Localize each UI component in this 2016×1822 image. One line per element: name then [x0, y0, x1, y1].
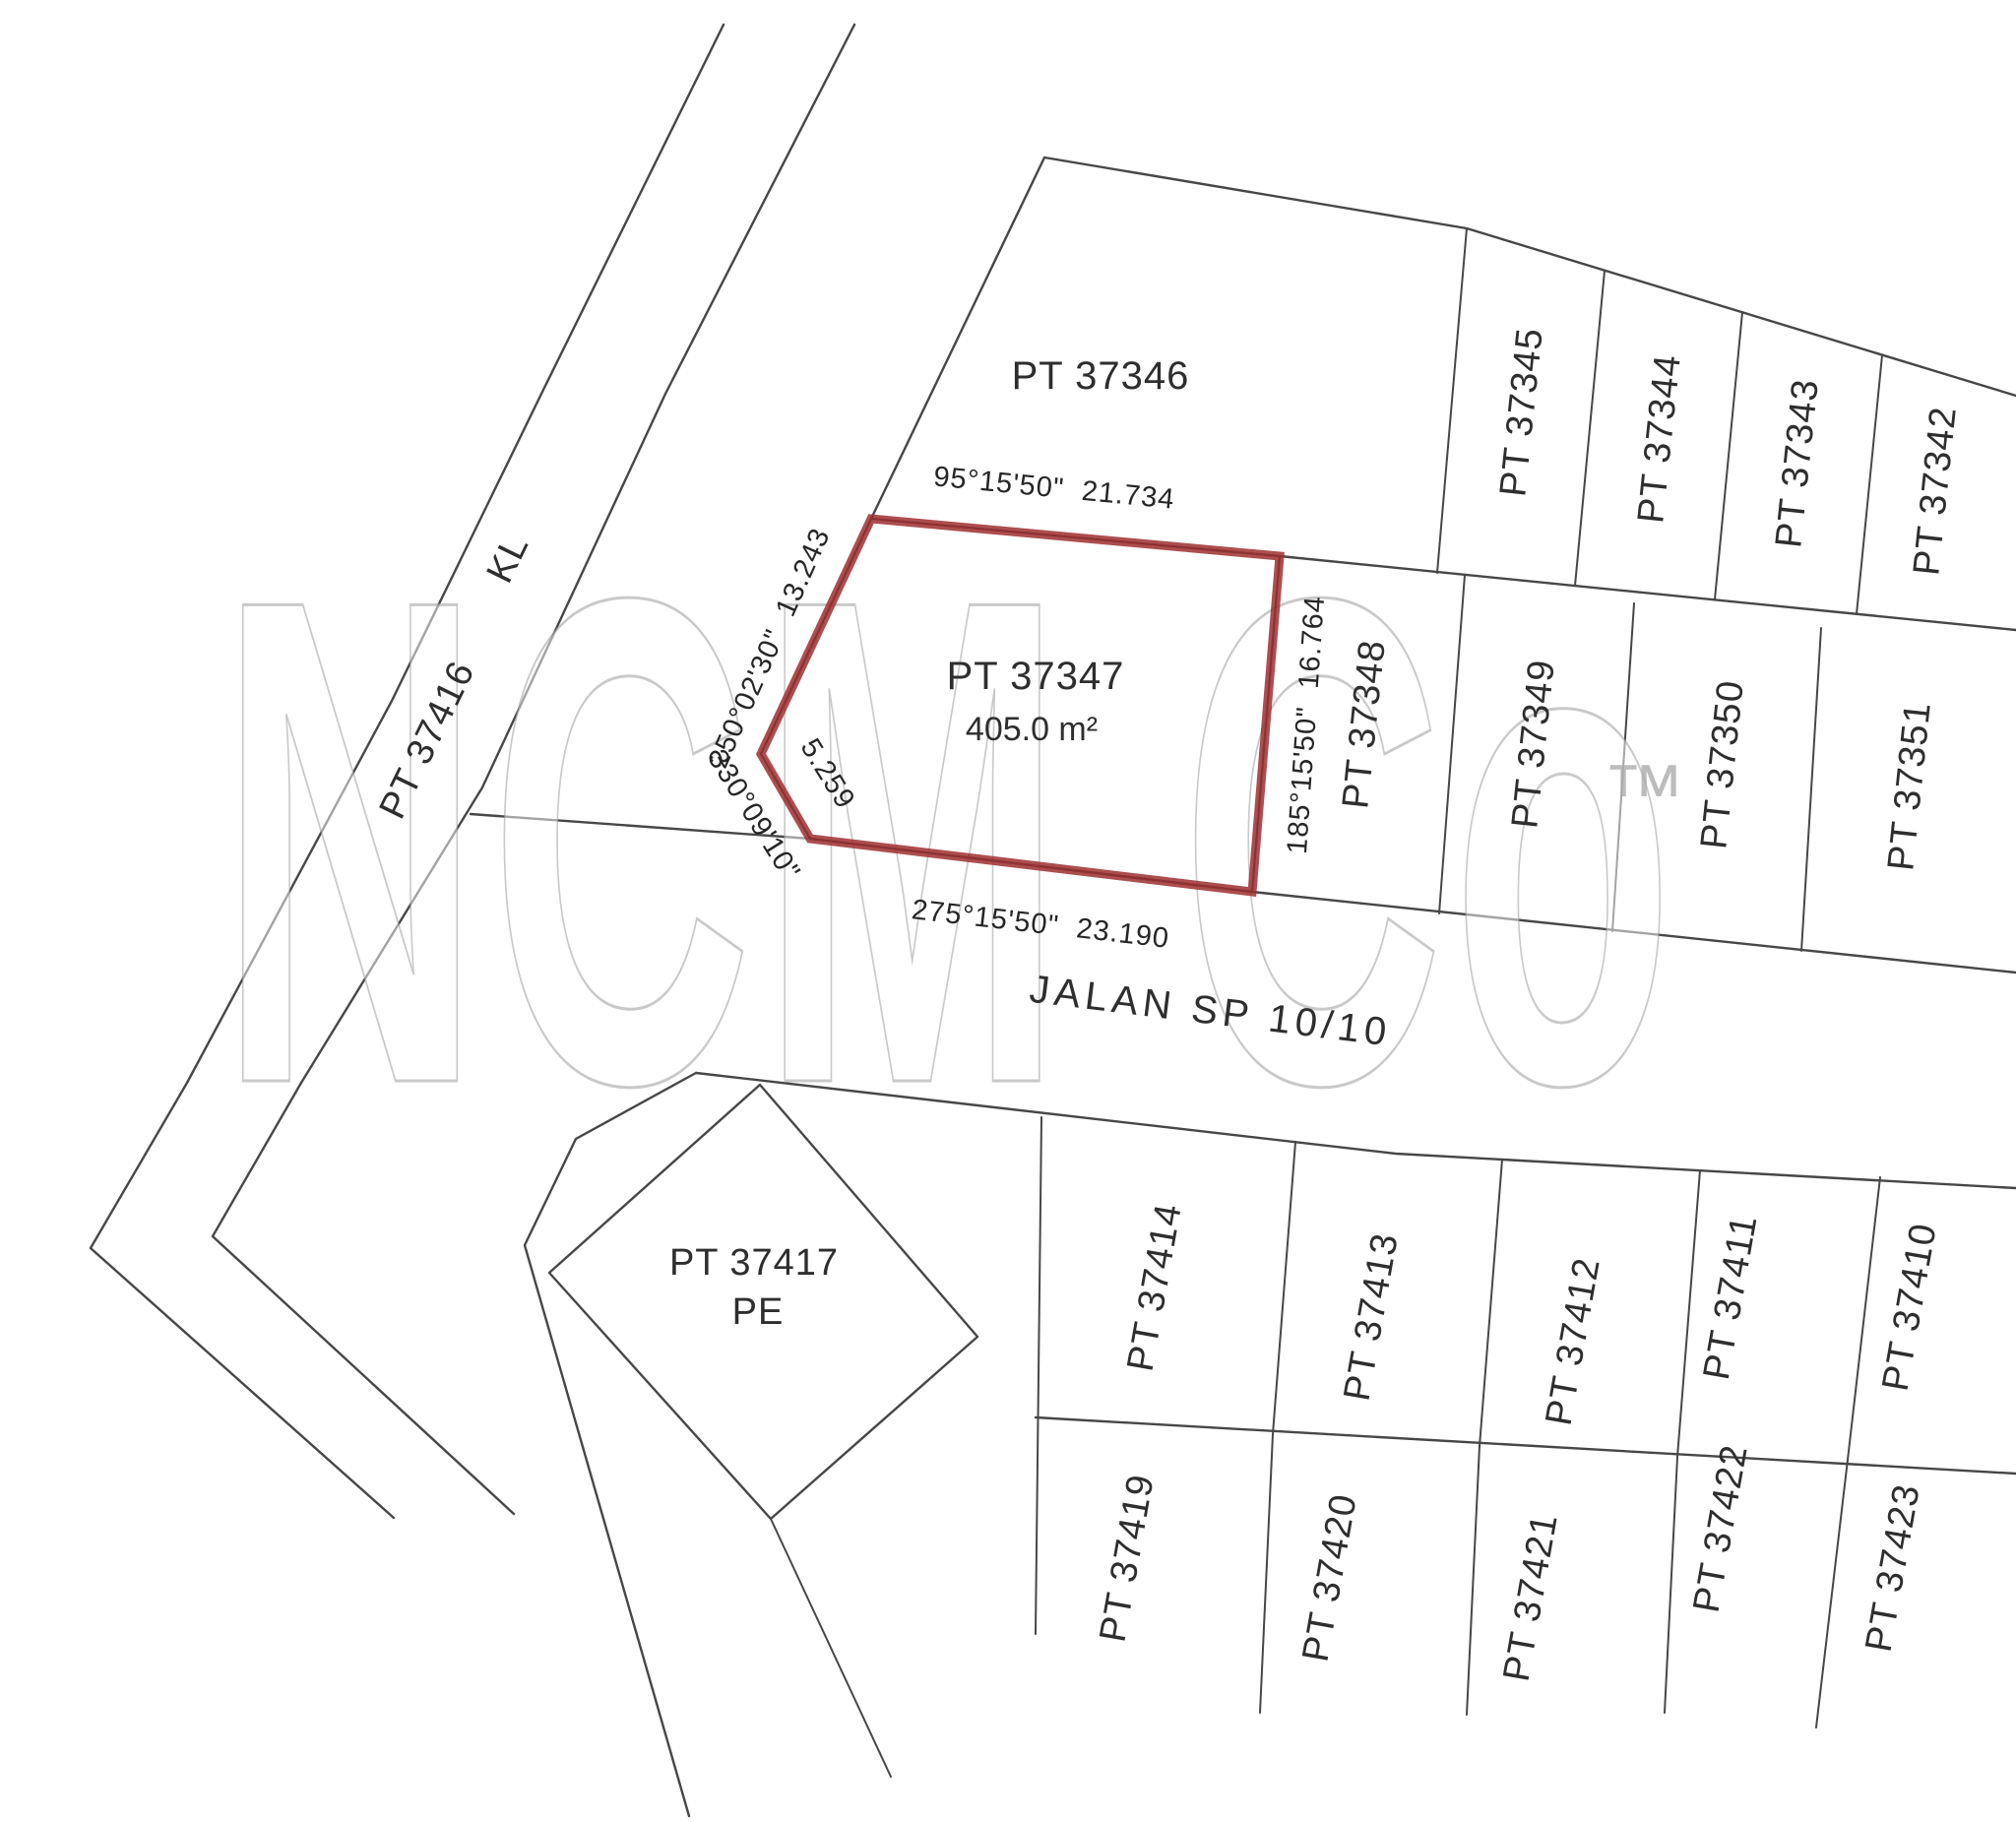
label-pt37350: PT 37350 — [1693, 678, 1752, 851]
cadastral-map: NCM Co ™ 95°15'50" 21.734 250°02'30" 13.… — [0, 0, 2016, 1822]
label-pt37420: PT 37420 — [1295, 1491, 1365, 1665]
watermark: NCM Co ™ — [219, 455, 1685, 1228]
label-pt37417: PT 37417 — [669, 1242, 839, 1284]
watermark-text: NCM Co — [219, 455, 1682, 1228]
label-pt37413: PT 37413 — [1337, 1230, 1407, 1405]
label-pt37423: PT 37423 — [1858, 1481, 1928, 1656]
divider-37343-37342 — [1857, 355, 1882, 614]
divider-37413-37412 — [1467, 1160, 1502, 1715]
pt37417-south-spur — [771, 1519, 891, 1777]
label-pt37411: PT 37411 — [1696, 1212, 1766, 1383]
label-pt37422: PT 37422 — [1686, 1442, 1756, 1616]
divider-37350-37351 — [1801, 628, 1821, 951]
label-pt37346: PT 37346 — [1012, 354, 1190, 398]
watermark-tm-icon: ™ — [1603, 747, 1685, 840]
divider-37344-37343 — [1715, 312, 1742, 599]
label-pt37412: PT 37412 — [1539, 1255, 1608, 1429]
label-pt37421: PT 37421 — [1496, 1511, 1566, 1685]
label-pt37342: PT 37342 — [1906, 405, 1965, 578]
survey-plan-page: NCM Co ™ 95°15'50" 21.734 250°02'30" 13.… — [0, 0, 2016, 1822]
label-pt37417-code: PE — [732, 1291, 785, 1333]
label-pt37410: PT 37410 — [1875, 1221, 1945, 1395]
label-pt37347: PT 37347 — [947, 655, 1125, 698]
row-divider-lower — [1036, 1417, 2016, 1474]
label-pt37351: PT 37351 — [1880, 700, 1939, 873]
label-pt37347-area: 405.0 m² — [966, 711, 1098, 748]
label-pt37343: PT 37343 — [1768, 377, 1827, 550]
label-pt37419: PT 37419 — [1093, 1472, 1163, 1646]
divider-37412-37411 — [1665, 1170, 1700, 1713]
